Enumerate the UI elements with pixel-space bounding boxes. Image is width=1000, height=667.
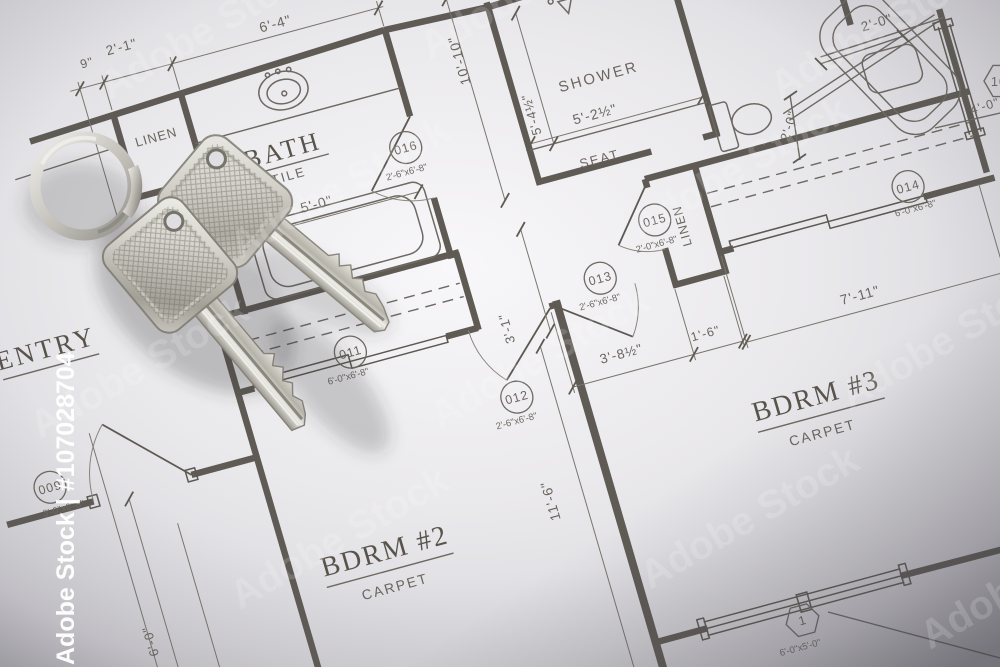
photo-canvas: 9" 2'-1" 6'-4" 5'-0" 10'-10" 5'-4½" 5'-2… [0, 0, 1000, 667]
corner-shading [0, 0, 1000, 667]
watermark-stock-id: Adobe Stock | #107028704 [52, 352, 80, 665]
stock-photo-keys-on-blueprint: 9" 2'-1" 6'-4" 5'-0" 10'-10" 5'-4½" 5'-2… [0, 0, 1000, 667]
